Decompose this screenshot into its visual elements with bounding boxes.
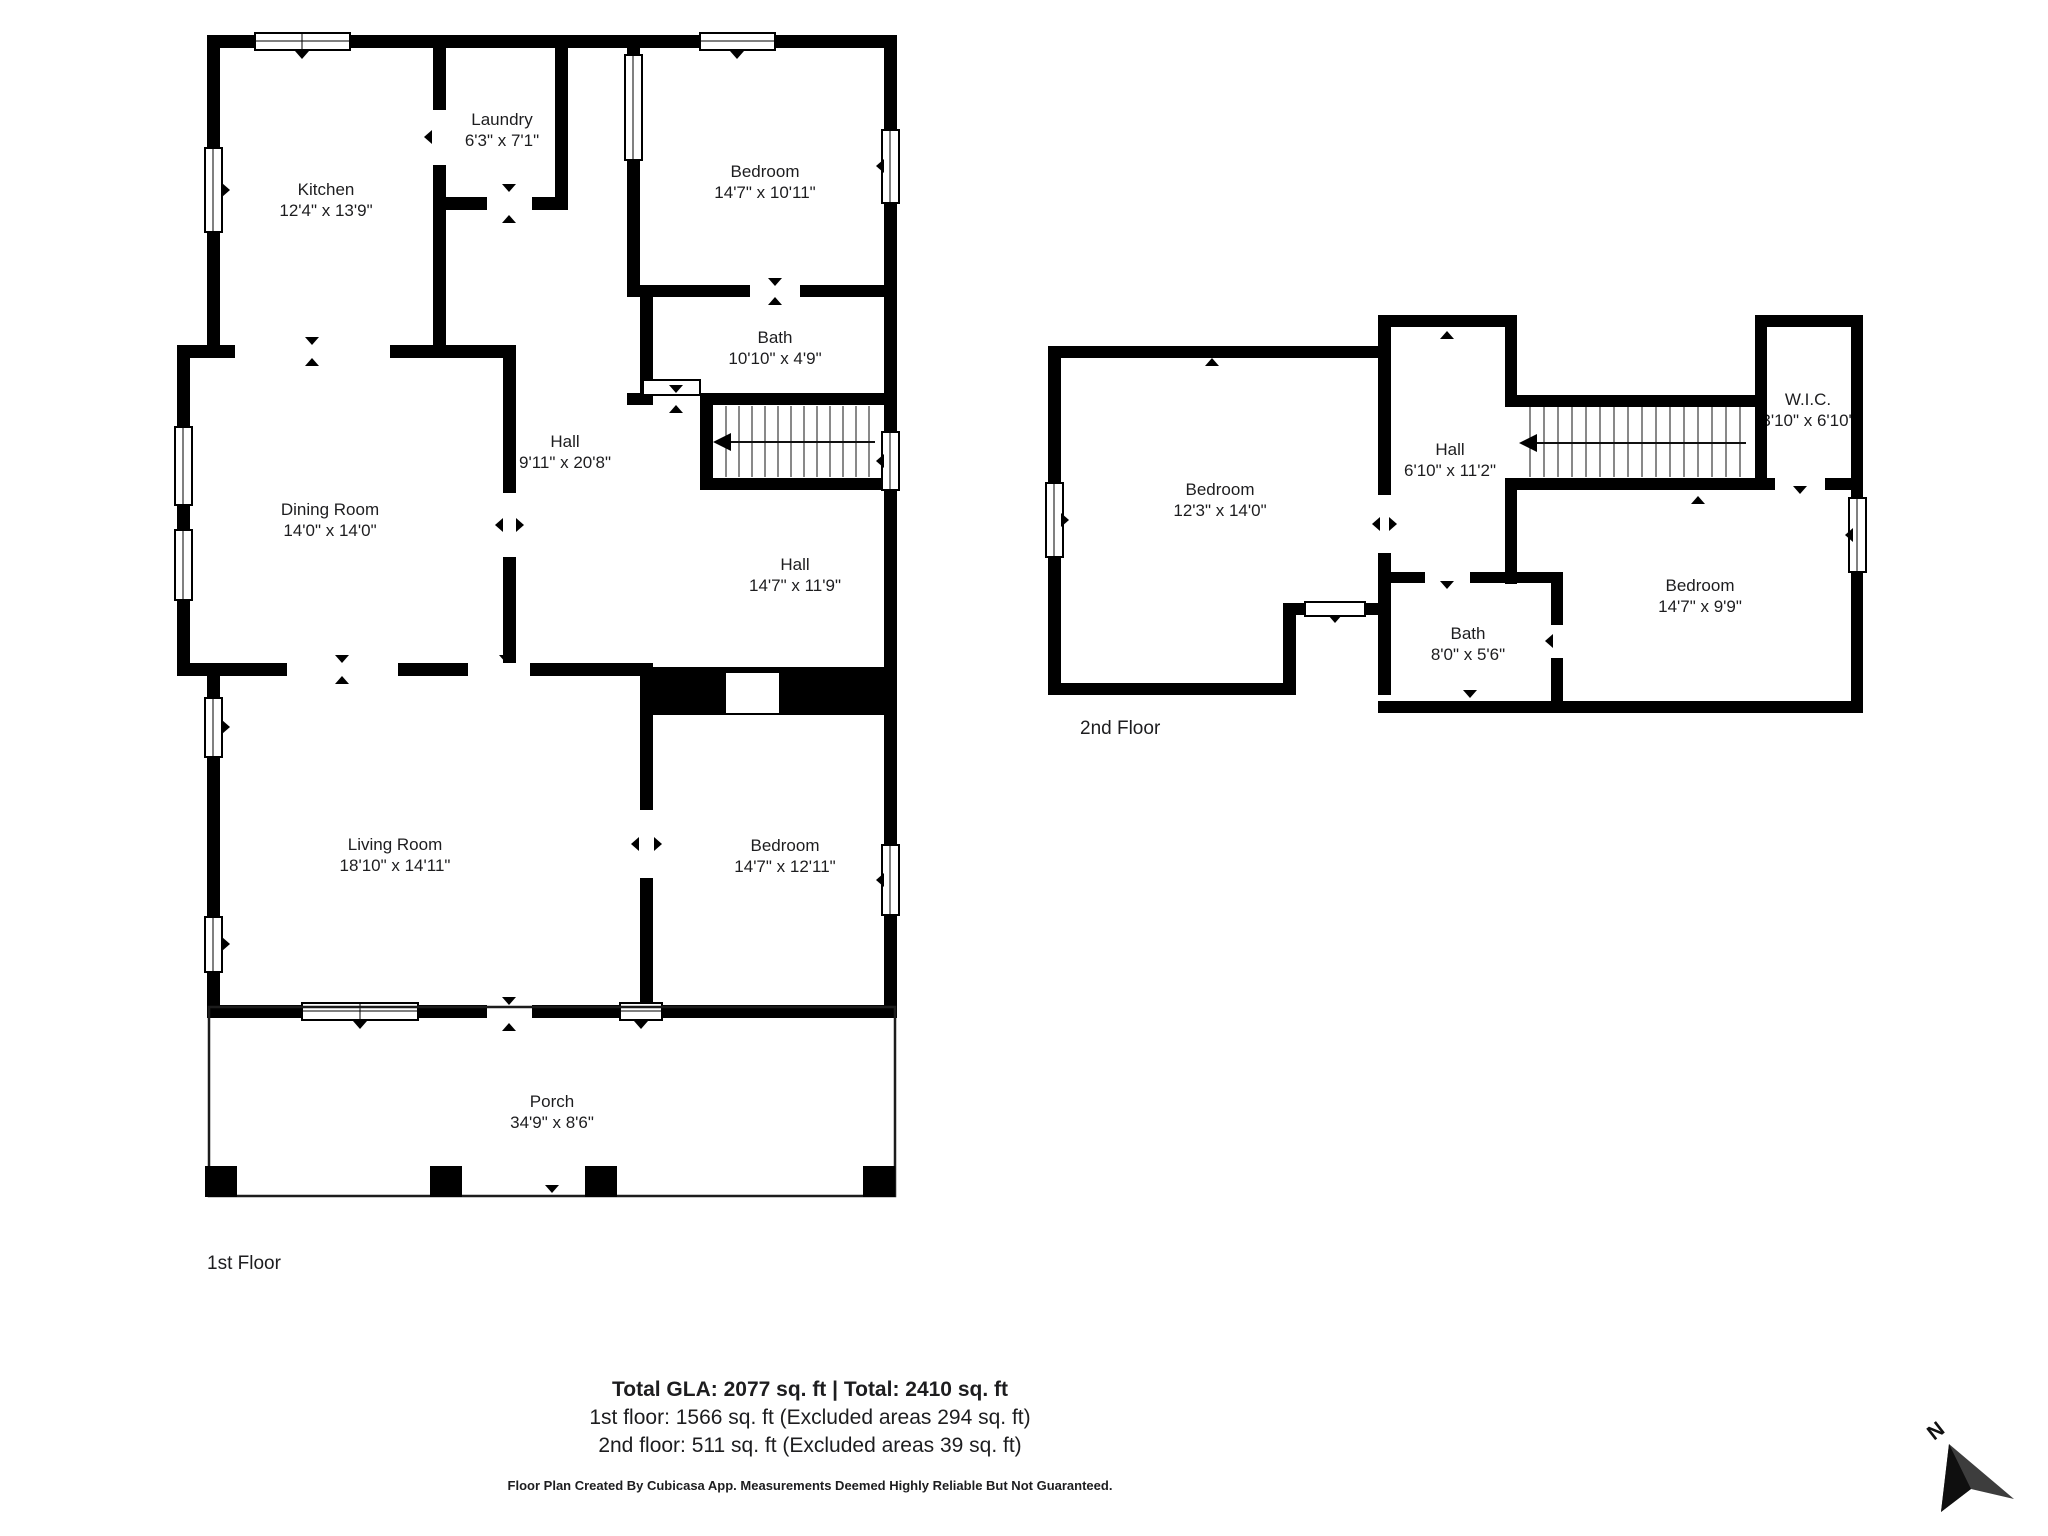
floor2-windows bbox=[1046, 483, 1866, 616]
porch-pillars bbox=[205, 1166, 895, 1197]
room-label-hall-vertical: Hall 9'11" x 20'8" bbox=[519, 431, 611, 473]
room-label-bedroom-bottom: Bedroom 14'7" x 12'11" bbox=[734, 835, 835, 877]
room-label-laundry: Laundry 6'3" x 7'1" bbox=[465, 109, 539, 151]
room-label-bath-2f: Bath 8'0" x 5'6" bbox=[1431, 623, 1505, 665]
room-label-hall-2f: Hall 6'10" x 11'2" bbox=[1404, 439, 1496, 481]
floor1-ticks bbox=[222, 51, 884, 1193]
room-label-dining-room: Dining Room 14'0" x 14'0" bbox=[281, 499, 379, 541]
stair-direction-arrow bbox=[713, 433, 731, 451]
floor1-staircase bbox=[713, 406, 875, 477]
room-label-bedroom-2f-right: Bedroom 14'7" x 9'9" bbox=[1658, 575, 1742, 617]
stair-direction-arrow bbox=[1519, 434, 1537, 452]
north-arrow-icon: N bbox=[1923, 1417, 2014, 1512]
room-label-bath-1: Bath 10'10" x 4'9" bbox=[728, 327, 821, 369]
floor2-staircase bbox=[1519, 407, 1746, 477]
room-label-hall-center: Hall 14'7" x 11'9" bbox=[749, 554, 841, 596]
chimney-mass bbox=[653, 667, 897, 715]
room-label-bedroom-2f-left: Bedroom 12'3" x 14'0" bbox=[1173, 479, 1266, 521]
floor-plan-page: N Kitchen 12'4" x 13'9" Laundry 6'3" x 7… bbox=[0, 0, 2048, 1536]
total-gla-line: Total GLA: 2077 sq. ft | Total: 2410 sq.… bbox=[508, 1376, 1113, 1404]
floor2-sqft-line: 2nd floor: 511 sq. ft (Excluded areas 39… bbox=[508, 1432, 1113, 1460]
room-label-bedroom-top: Bedroom 14'7" x 10'11" bbox=[714, 161, 815, 203]
room-label-porch: Porch 34'9" x 8'6" bbox=[510, 1091, 594, 1133]
room-label-wic: W.I.C. 3'10" x 6'10" bbox=[1761, 389, 1854, 431]
north-label: N bbox=[1923, 1417, 1949, 1444]
floor1-door-openings bbox=[235, 110, 800, 1018]
room-label-kitchen: Kitchen 12'4" x 13'9" bbox=[279, 179, 372, 221]
floor2-caption: 2nd Floor bbox=[1080, 718, 1160, 740]
floor1-caption: 1st Floor bbox=[207, 1253, 281, 1275]
room-label-living-room: Living Room 18'10" x 14'11" bbox=[340, 834, 451, 876]
disclaimer-line: Floor Plan Created By Cubicasa App. Meas… bbox=[508, 1478, 1113, 1493]
footer-summary: Total GLA: 2077 sq. ft | Total: 2410 sq.… bbox=[508, 1376, 1113, 1493]
floor1-sqft-line: 1st floor: 1566 sq. ft (Excluded areas 2… bbox=[508, 1404, 1113, 1432]
floor-plan-drawing: N bbox=[0, 0, 2048, 1536]
